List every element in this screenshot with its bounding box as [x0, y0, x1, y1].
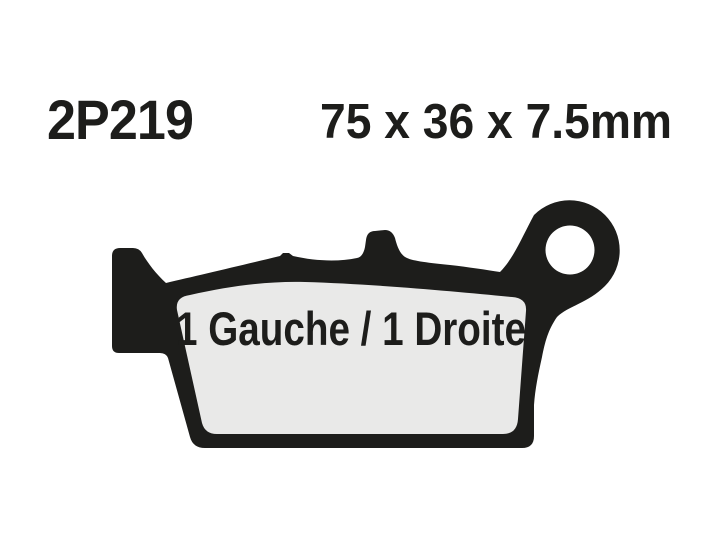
product-diagram-page: 2P219 75 x 36 x 7.5mm 1 Gauche / 1 Droit… — [0, 0, 720, 540]
part-number: 2P219 — [47, 88, 193, 151]
orientation-label: 1 Gauche / 1 Droite — [176, 302, 526, 355]
dimensions-label: 75 x 36 x 7.5mm — [320, 95, 672, 149]
brake-pad-diagram: 2P219 75 x 36 x 7.5mm 1 Gauche / 1 Droit… — [0, 0, 720, 540]
